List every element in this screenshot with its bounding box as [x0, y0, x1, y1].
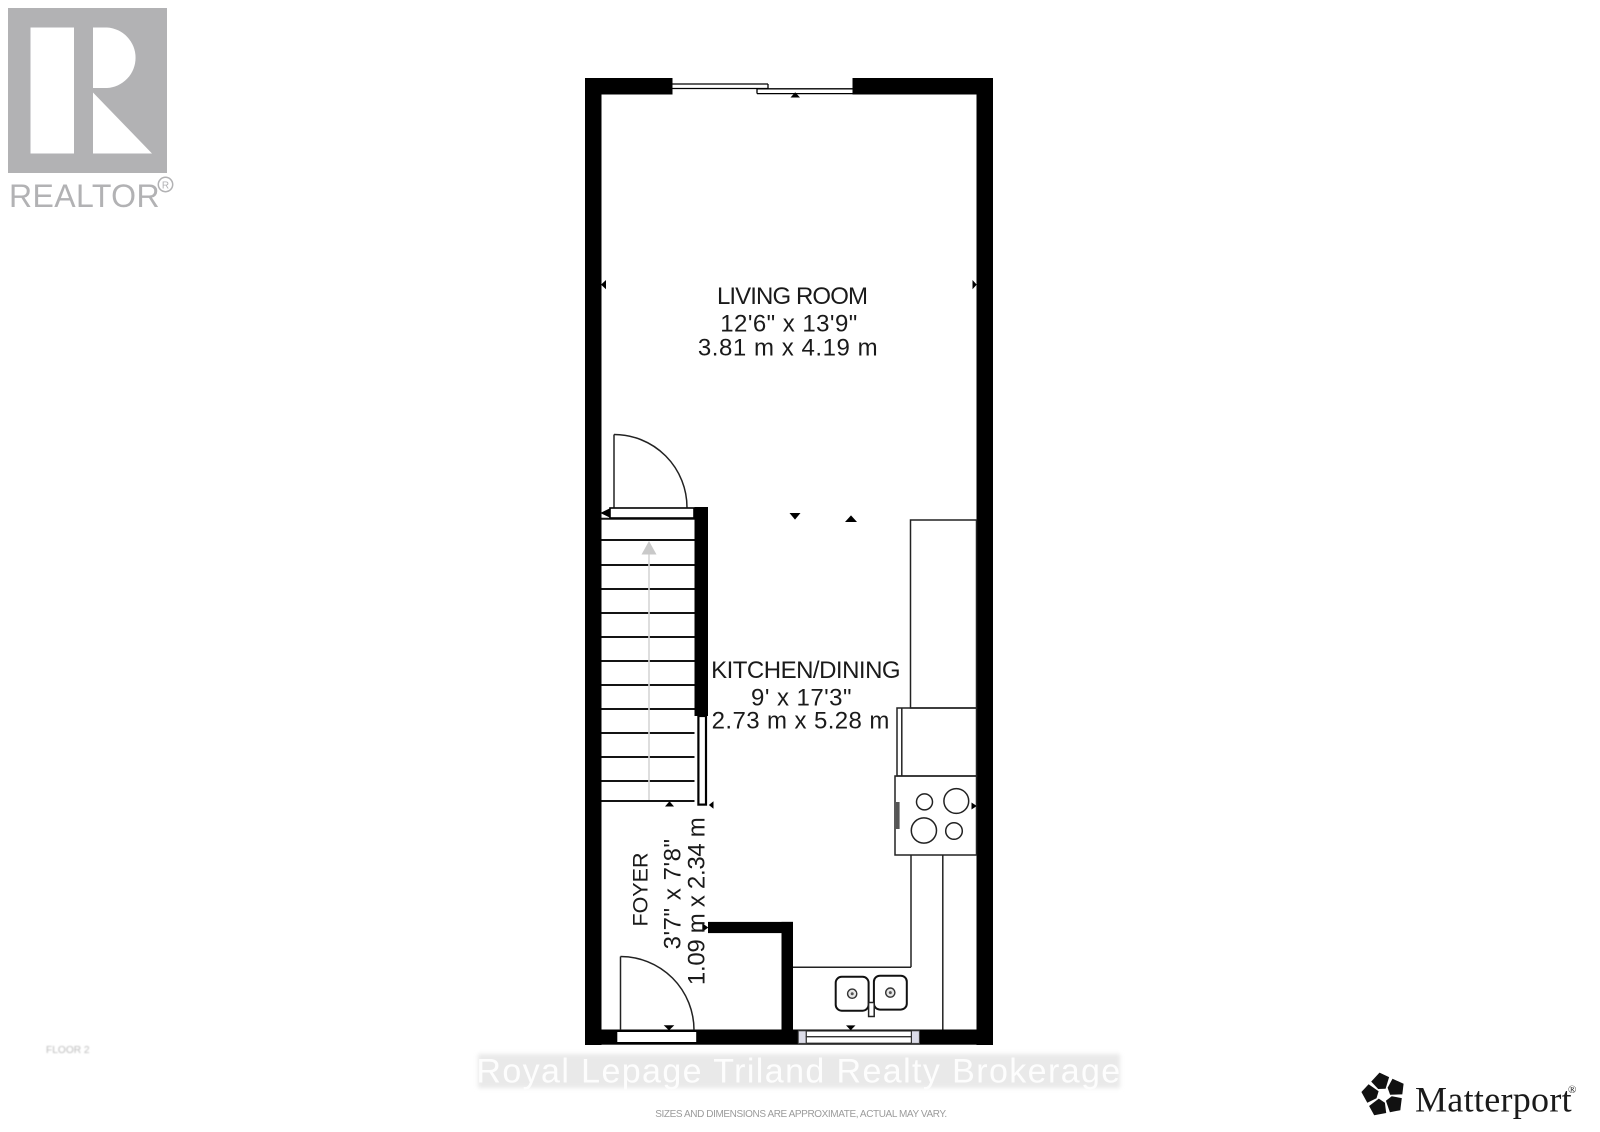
- svg-text:REALTOR: REALTOR: [9, 178, 160, 214]
- svg-text:Matterport: Matterport: [1415, 1080, 1572, 1120]
- svg-text:12'6" x 13'9": 12'6" x 13'9": [720, 311, 857, 338]
- svg-text:KITCHEN/DINING: KITCHEN/DINING: [711, 657, 900, 684]
- svg-text:Royal Lepage Triland Realty Br: Royal Lepage Triland Realty Brokerage: [476, 1053, 1121, 1091]
- svg-text:FOYER: FOYER: [629, 852, 653, 926]
- svg-text:2.73 m x 5.28 m: 2.73 m x 5.28 m: [712, 708, 890, 735]
- svg-text:FLOOR 2: FLOOR 2: [46, 1045, 90, 1056]
- svg-text:1.09 m x 2.34 m: 1.09 m x 2.34 m: [684, 818, 711, 986]
- svg-text:3.81 m x 4.19 m: 3.81 m x 4.19 m: [698, 335, 878, 362]
- svg-text:LIVING ROOM: LIVING ROOM: [717, 283, 867, 310]
- svg-text:SIZES AND DIMENSIONS ARE APPRO: SIZES AND DIMENSIONS ARE APPROXIMATE, AC…: [655, 1109, 946, 1120]
- svg-text:®: ®: [1568, 1084, 1576, 1096]
- svg-text:R: R: [162, 181, 169, 192]
- svg-text:3'7" x 7'8": 3'7" x 7'8": [660, 838, 687, 949]
